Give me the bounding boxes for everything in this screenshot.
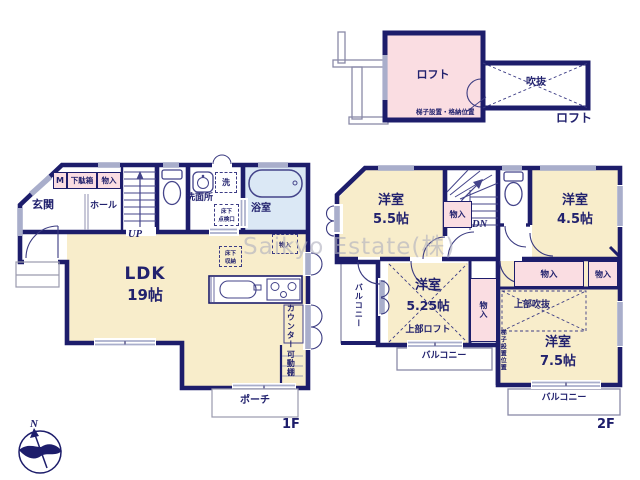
meter-box: M <box>53 172 67 189</box>
kitchen-counter-icon <box>209 276 302 303</box>
up-label: UP <box>128 229 142 240</box>
room-ne-size: 4.5帖 <box>544 213 606 227</box>
upper-void-label: 上部吹抜 <box>514 301 550 310</box>
floor2-label: 2F <box>597 418 615 432</box>
storage-band-2-label: 物入 <box>595 269 611 280</box>
washer-pan: 洗 <box>215 172 237 193</box>
ladder-pos-label: 梯子設置位置 <box>499 329 505 371</box>
room-ne-name: 洋室 <box>544 194 606 208</box>
loft-room-label: ロフト <box>408 69 458 81</box>
storage-band-2-box: 物入 <box>588 261 618 287</box>
storage-band-1-box: 物入 <box>514 261 584 287</box>
loft-ladder-note: 梯子設置・格納位置 <box>416 109 475 116</box>
loft-void-label: 吹抜 <box>511 78 561 89</box>
room-mid-name: 洋室 <box>397 279 459 293</box>
room-mid-size: 5.25帖 <box>393 299 463 312</box>
balcony-se-label: バルコニー <box>524 394 604 403</box>
upper-loft-label: 上部ロフト <box>393 326 463 335</box>
ldk-name-label: LDK <box>110 266 180 284</box>
casement-arcs-1f <box>311 253 322 349</box>
room-se-size: 7.5帖 <box>527 355 589 369</box>
floor1-plan <box>16 155 322 417</box>
underfloor-hatch-label: 床下点検口 <box>218 207 235 223</box>
porch-label: ポーチ <box>225 396 285 407</box>
storage-top-box: 物入 <box>97 172 121 189</box>
floor1-label: 1F <box>282 418 300 432</box>
loft-floor-label: ロフト <box>556 112 592 125</box>
toilet-icon-2f <box>504 172 523 206</box>
sink-icon <box>193 172 213 192</box>
movable-shelf-label: 可動棚 <box>286 350 294 377</box>
storage-band-1-label: 物入 <box>540 268 557 280</box>
shoe-box: 下駄箱 <box>67 172 97 189</box>
underfloor-storage-label: 床下収納 <box>225 249 236 265</box>
bath-label: 浴室 <box>251 204 271 215</box>
counter-label: カウンター <box>286 304 294 349</box>
compass-north-label: N <box>30 419 38 431</box>
balcony-south-label: バルコニー <box>404 352 484 361</box>
floorplan-page: Saikyo Estate(株) ロフト 吹抜 梯子設置・格納位置 ロフト 玄関… <box>0 0 640 480</box>
bath-room-fill <box>243 165 308 232</box>
entrance-label: 玄関 <box>32 199 54 211</box>
storage-mid-box: 物入 <box>470 278 497 342</box>
storage-top-label: 物入 <box>102 175 117 186</box>
room-nw-name: 洋室 <box>360 194 422 208</box>
underfloor-hatch: 床下点検口 <box>214 204 239 226</box>
storage-stairs-label: 物入 <box>450 209 466 220</box>
washroom-label: 洗面所 <box>186 194 213 203</box>
ldk-size-label: 19帖 <box>110 288 180 304</box>
compass-icon <box>19 428 62 473</box>
underfloor-storage: 床下収納 <box>219 246 242 267</box>
watermark: Saikyo Estate(株) <box>243 227 455 261</box>
washer-label: 洗 <box>222 177 230 188</box>
dn-label: DN <box>472 219 487 230</box>
shoe-box-label: 下駄箱 <box>71 175 94 186</box>
room-se-name: 洋室 <box>527 336 589 350</box>
hall-label: ホール <box>90 202 117 211</box>
balcony-west-label: バルコニー <box>354 283 362 328</box>
storage-mid-label: 物入 <box>478 301 489 319</box>
toilet-icon-1f <box>162 170 182 205</box>
room-nw-size: 5.5帖 <box>360 213 422 227</box>
meter-box-label: M <box>56 176 64 185</box>
storage-stairs-box: 物入 <box>443 201 472 228</box>
loft-window <box>382 55 387 100</box>
loft-exterior-lines <box>333 32 388 124</box>
